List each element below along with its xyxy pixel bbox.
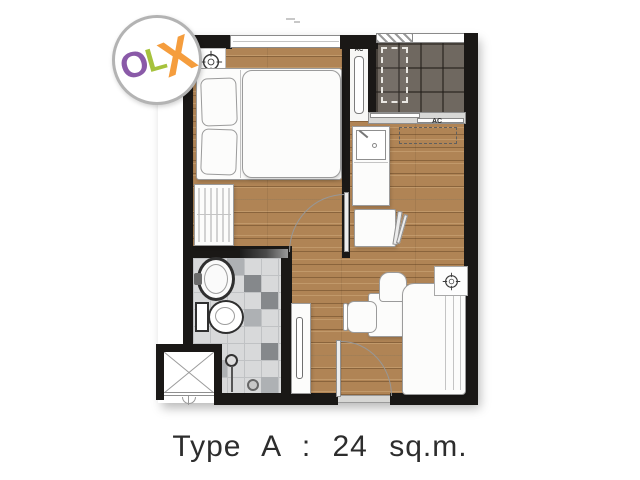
sofa-seam <box>453 292 454 390</box>
wardrobe-clothes <box>198 188 230 242</box>
olx-logo-circle: O L X <box>112 15 202 105</box>
indoor-ac-unit-dashed <box>399 127 457 144</box>
pillow <box>200 77 238 126</box>
shaft-wall-left <box>156 344 164 400</box>
kitchen-table <box>354 209 396 247</box>
bedroom-window <box>230 35 342 48</box>
floor-plan-image: AC <box>0 0 640 480</box>
balcony-sliding-panel <box>370 113 420 118</box>
olx-logo: O L X <box>107 10 207 110</box>
sink-basin <box>197 257 235 301</box>
entry-threshold <box>338 395 390 403</box>
kitchen-sink <box>356 130 386 160</box>
crosshair-icon <box>442 272 461 291</box>
toilet-tank <box>195 302 209 332</box>
ceiling-symbol-box-living <box>434 266 468 296</box>
sink-faucet <box>194 273 202 285</box>
bath-accent-tile <box>244 309 261 326</box>
kitchen-counter <box>352 126 390 206</box>
sofa <box>402 283 466 395</box>
shaft-wall-top <box>156 344 222 352</box>
counter-divider <box>354 162 388 163</box>
bath-accent-tile <box>261 292 278 309</box>
floor-drain <box>247 379 259 391</box>
toilet-bowl <box>208 300 244 334</box>
bathroom-sliding-door <box>240 249 288 258</box>
bath-accent-tile <box>261 343 278 360</box>
wall-right <box>464 33 478 405</box>
dimension-tick <box>286 18 295 20</box>
sofa-seam <box>445 292 446 390</box>
kitchen-knob <box>372 143 377 148</box>
shaft-louver <box>164 392 214 396</box>
sofa-seam <box>460 292 461 390</box>
window-mullion <box>233 41 339 42</box>
wall-bottom-left <box>214 393 338 405</box>
balcony-railing-hatched <box>376 33 414 43</box>
shower-pipe <box>231 366 233 392</box>
bed-divider-line <box>240 70 241 178</box>
balcony-railing <box>412 33 470 43</box>
bath-accent-tile <box>244 275 261 292</box>
plan-caption: Type A : 24 sq.m. <box>0 430 640 464</box>
x-cross-icon <box>164 352 214 393</box>
bath-accent-tile <box>261 377 278 393</box>
shaft-wall-right <box>214 344 222 401</box>
bedroom-ac-unit <box>354 56 364 114</box>
living-ac-label: AC <box>432 118 452 126</box>
toilet-bowl-inner <box>215 307 235 325</box>
olx-watermark: O L X <box>112 15 202 105</box>
sink-basin-inner <box>204 264 228 294</box>
wardrobe <box>194 184 234 246</box>
outdoor-ac-unit-dashed <box>381 47 408 103</box>
pillow <box>200 128 238 175</box>
shaft-vent-line <box>188 396 189 405</box>
shaft-interior <box>164 352 214 393</box>
desk-chair <box>347 301 377 333</box>
dimension-tick <box>294 21 300 23</box>
wardrobe-shelf-line <box>197 214 231 215</box>
duvet <box>242 70 341 178</box>
tv <box>296 317 303 379</box>
